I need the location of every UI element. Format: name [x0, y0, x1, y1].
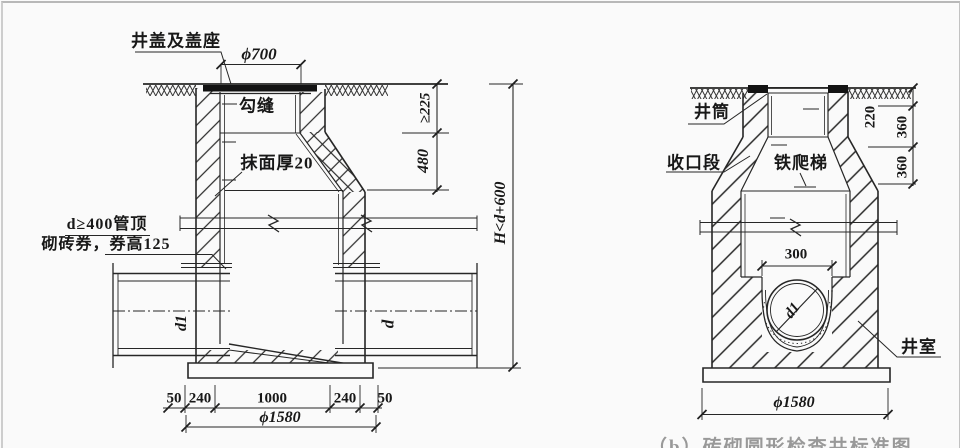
dim-seg-1000: 1000	[257, 392, 287, 407]
dim-bottom-diameter-right: ϕ1580	[773, 395, 814, 411]
engineering-drawing: 井盖及盖座 ϕ700 勾缝 抹面厚20 d≥400管顶 砌砖券，券高125 d1…	[0, 0, 960, 448]
label-shaft: 井筒	[694, 104, 730, 121]
dim-seg-50-left: 50	[167, 392, 182, 407]
dim-course-360-lower: 360	[896, 156, 911, 179]
dim-depth-min-225: ≥225	[419, 93, 434, 124]
dim-pipe-d-right: d	[380, 320, 397, 329]
label-chamber: 井室	[901, 339, 937, 356]
dim-course-360-upper: 360	[896, 116, 911, 139]
label-joint: 勾缝	[239, 98, 275, 115]
label-arch-note-line2: 砌砖券，券高125	[41, 237, 170, 253]
dim-bottom-diameter-left: ϕ1580	[259, 410, 300, 426]
dim-pipe-d1-left: d1	[174, 315, 190, 331]
label-arch-note-line1: d≥400管顶	[67, 217, 148, 233]
label-cover-seat: 井盖及盖座	[131, 33, 221, 50]
dim-seg-50-right: 50	[378, 392, 393, 407]
dim-top-diameter: ϕ700	[241, 46, 276, 63]
label-plaster-thickness: 抹面厚20	[241, 155, 314, 172]
cut-off-caption: （b）砖砌圆形检查井标准图	[648, 436, 948, 448]
dim-seg-240-right: 240	[334, 392, 357, 407]
label-iron-ladder: 铁爬梯	[774, 155, 828, 172]
dim-channel-300: 300	[785, 248, 808, 263]
dim-total-height: H<d+600	[493, 182, 509, 245]
label-taper-section: 收口段	[667, 155, 721, 172]
dim-seg-240-left: 240	[189, 392, 212, 407]
dim-shaft-220: 220	[864, 106, 879, 129]
dim-cone-480: 480	[416, 149, 432, 173]
